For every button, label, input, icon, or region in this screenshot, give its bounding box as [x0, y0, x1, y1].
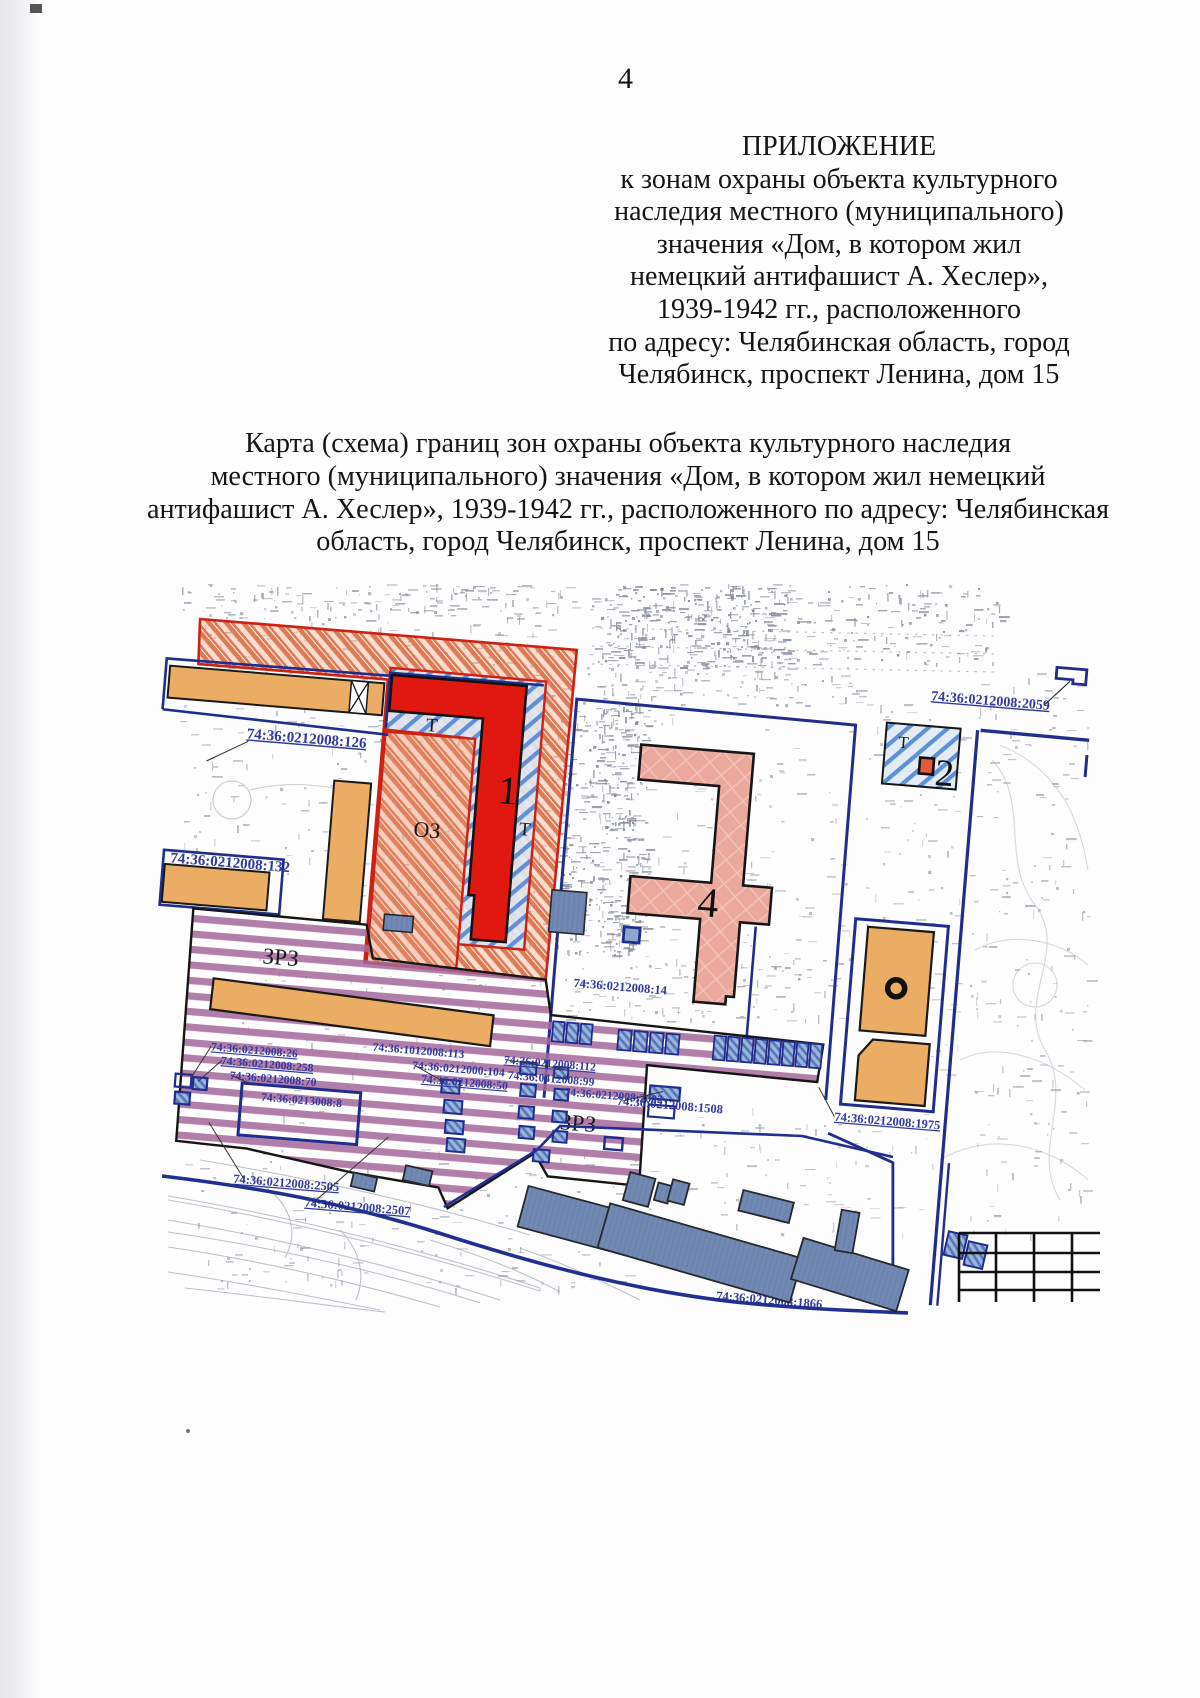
svg-text:4: 4: [696, 880, 721, 928]
svg-text:ЗРЗ: ЗРЗ: [262, 943, 300, 971]
svg-text:ОЗ: ОЗ: [413, 816, 442, 843]
svg-text:Т: Т: [518, 819, 532, 841]
svg-text:Т: Т: [425, 715, 439, 737]
svg-text:74:36:0212008:2505: 74:36:0212008:2505: [233, 1172, 340, 1195]
svg-text:74:36:0212008:14: 74:36:0212008:14: [573, 976, 668, 998]
svg-text:2: 2: [933, 752, 955, 795]
svg-text:1: 1: [496, 767, 520, 813]
svg-text:74:36:0212008:1975: 74:36:0212008:1975: [834, 1110, 941, 1133]
